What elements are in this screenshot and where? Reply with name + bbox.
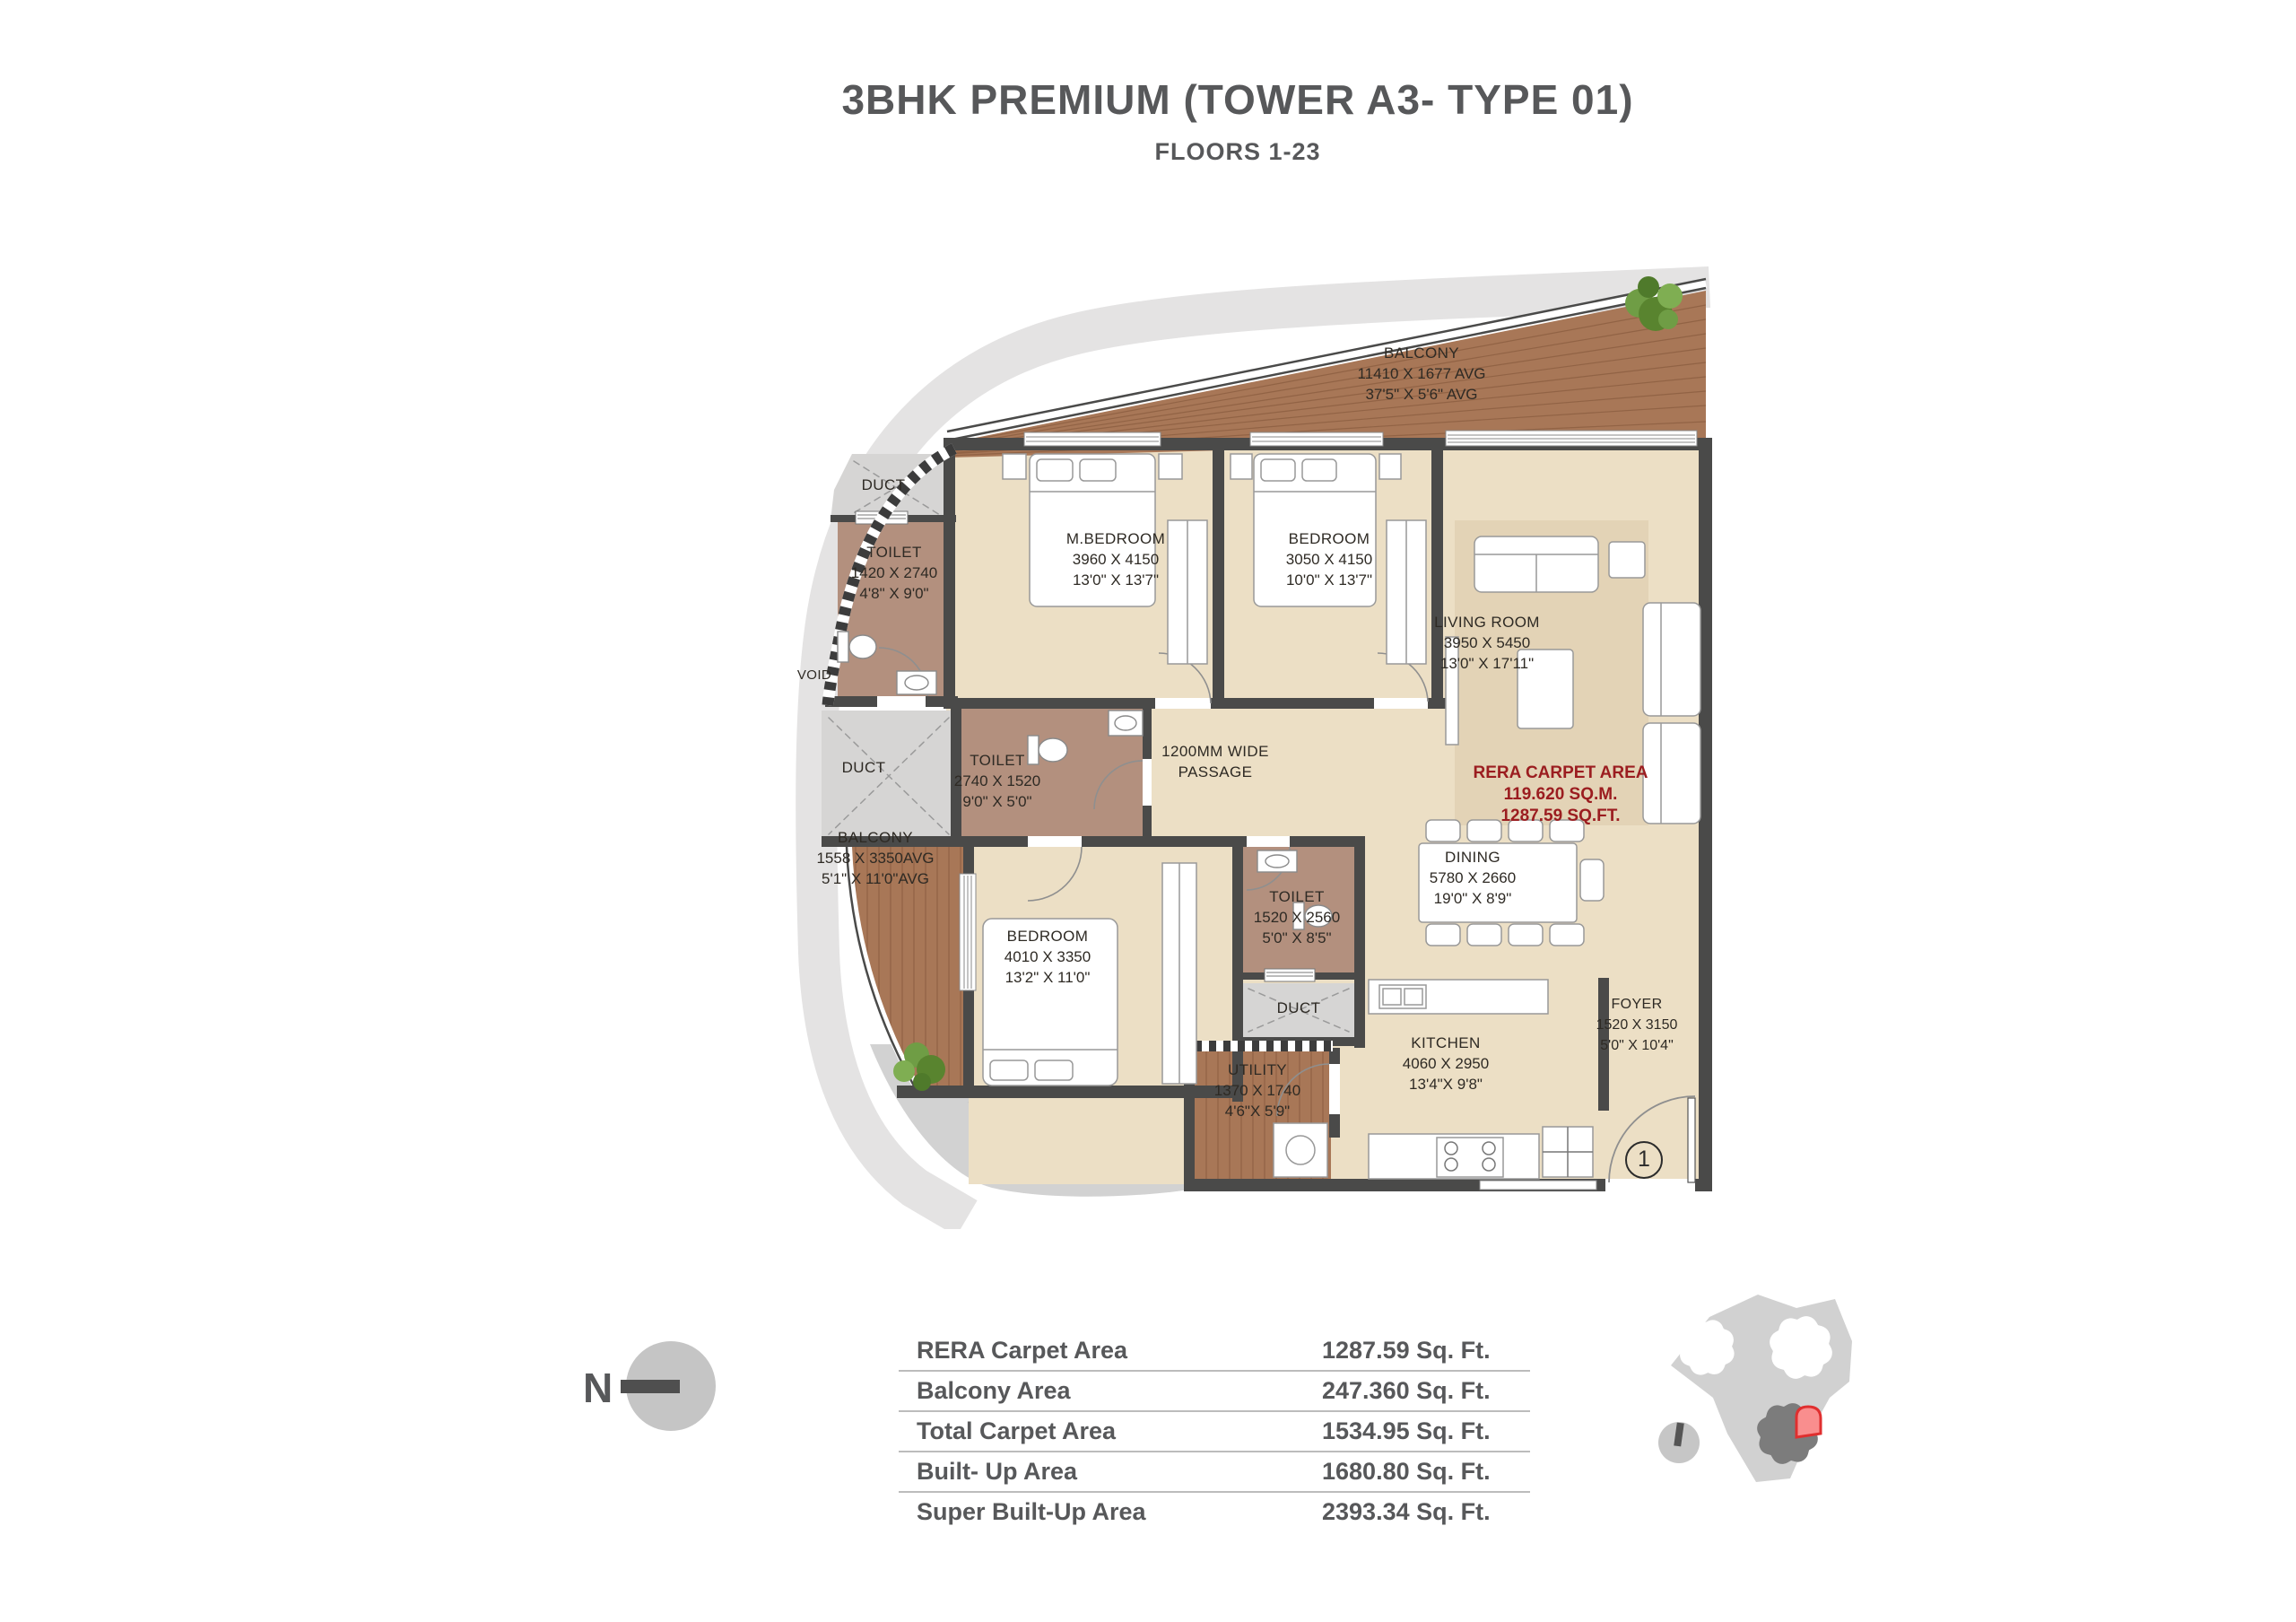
room-label-m-bedroom: M.BEDROOM 3960 X 4150 13'0" X 13'7" xyxy=(1066,528,1165,590)
room-label-utility: UTILITY 1370 X 1740 4'6"X 5'9" xyxy=(1214,1060,1300,1121)
page-title: 3BHK PREMIUM (TOWER A3- TYPE 01) xyxy=(762,75,1713,124)
table-row: Super Built-Up Area 2393.34 Sq. Ft. xyxy=(899,1493,1530,1531)
room-label-duct-top: DUCT xyxy=(862,475,906,495)
table-row: RERA Carpet Area 1287.59 Sq. Ft. xyxy=(899,1331,1530,1372)
title-block: 3BHK PREMIUM (TOWER A3- TYPE 01) FLOORS … xyxy=(762,75,1713,166)
page-subtitle: FLOORS 1-23 xyxy=(762,138,1713,166)
room-label-bedroom-3: BEDROOM 4010 X 3350 13'2" X 11'0" xyxy=(1004,926,1091,988)
area-value: 1287.59 Sq. Ft. xyxy=(1322,1337,1530,1365)
rera-carpet-note: RERA CARPET AREA 119.620 SQ.M. 1287.59 S… xyxy=(1474,763,1648,827)
entry-marker: 1 xyxy=(1625,1141,1663,1179)
site-map-north-icon xyxy=(1658,1422,1700,1463)
area-value: 247.360 Sq. Ft. xyxy=(1322,1377,1530,1405)
north-bar-icon xyxy=(621,1380,680,1393)
area-label: Super Built-Up Area xyxy=(899,1498,1322,1526)
highlighted-unit xyxy=(1796,1407,1821,1437)
area-summary-table: RERA Carpet Area 1287.59 Sq. Ft. Balcony… xyxy=(899,1331,1530,1531)
room-label-toilet-top: TOILET 1420 X 2740 4'8" X 9'0" xyxy=(851,542,937,604)
area-label: Balcony Area xyxy=(899,1377,1322,1405)
room-label-passage: 1200MM WIDE PASSAGE xyxy=(1161,741,1269,782)
room-label-bedroom-2: BEDROOM 3050 X 4150 10'0" X 13'7" xyxy=(1286,528,1372,590)
room-label-balcony-left: BALCONY 1558 X 3350AVG 5'1" X 11'0"AVG xyxy=(816,827,934,889)
room-label-duct-bottom: DUCT xyxy=(1277,998,1321,1018)
table-row: Total Carpet Area 1534.95 Sq. Ft. xyxy=(899,1412,1530,1452)
area-label: Total Carpet Area xyxy=(899,1417,1322,1445)
room-label-duct-mid: DUCT xyxy=(842,757,886,778)
area-value: 2393.34 Sq. Ft. xyxy=(1322,1498,1530,1526)
table-row: Balcony Area 247.360 Sq. Ft. xyxy=(899,1372,1530,1412)
room-label-toilet-bottom: TOILET 1520 X 2560 5'0" X 8'5" xyxy=(1254,886,1340,948)
room-label-foyer: FOYER 1520 X 3150 5'0" X 10'4" xyxy=(1596,994,1678,1056)
room-label-balcony-top: BALCONY 11410 X 1677 AVG 37'5" X 5'6" AV… xyxy=(1357,343,1485,405)
area-label: Built- Up Area xyxy=(899,1458,1322,1486)
room-label-living-room: LIVING ROOM 3950 X 5450 13'0" X 17'11" xyxy=(1434,612,1540,674)
floor-plan: BALCONY 11410 X 1677 AVG 37'5" X 5'6" AV… xyxy=(762,251,1713,1229)
area-value: 1680.80 Sq. Ft. xyxy=(1322,1458,1530,1486)
room-label-void: VOID xyxy=(797,665,831,685)
north-label: N xyxy=(583,1364,613,1412)
table-row: Built- Up Area 1680.80 Sq. Ft. xyxy=(899,1452,1530,1493)
area-label: RERA Carpet Area xyxy=(899,1337,1322,1365)
page: 3BHK PREMIUM (TOWER A3- TYPE 01) FLOORS … xyxy=(0,0,2296,1622)
room-label-dining: DINING 5780 X 2660 19'0" X 8'9" xyxy=(1430,847,1516,909)
room-label-toilet-mid: TOILET 2740 X 1520 9'0" X 5'0" xyxy=(954,750,1040,812)
room-label-kitchen: KITCHEN 4060 X 2950 13'4"X 9'8" xyxy=(1403,1033,1489,1094)
site-map xyxy=(1631,1292,1855,1494)
area-value: 1534.95 Sq. Ft. xyxy=(1322,1417,1530,1445)
